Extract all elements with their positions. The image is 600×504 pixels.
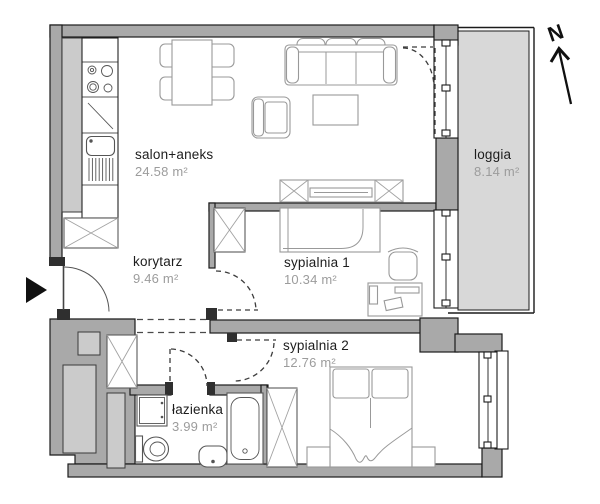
label-sypialnia1: sypialnia 1 10.34 m² [284, 254, 350, 288]
room-name: korytarz [133, 253, 183, 270]
balcony-door-swing [403, 47, 435, 136]
room-name: loggia [474, 146, 519, 163]
north-arrow-icon [551, 49, 571, 105]
nightstand [307, 447, 330, 467]
room-name: sypialnia 1 [284, 254, 350, 271]
floor-plan: salon+aneks 24.58 m² korytarz 9.46 m² sy… [0, 0, 600, 504]
corridor-wardrobe [107, 335, 137, 388]
kitchen-wardrobe [64, 218, 118, 248]
label-lazienka: łazienka 3.99 m² [172, 401, 223, 435]
room-area: 3.99 m² [172, 418, 223, 435]
armchair [252, 97, 290, 138]
room-name: łazienka [172, 401, 223, 418]
bathtub [227, 393, 263, 464]
planned-partition-dashed [137, 320, 210, 333]
room-area: 9.46 m² [133, 270, 183, 287]
bedroom2-window [479, 351, 508, 449]
balcony-door-window [434, 40, 458, 138]
toilet [136, 436, 169, 462]
room-name: sypialnia 2 [283, 337, 349, 354]
bedroom1-door-swing [216, 271, 258, 311]
room-area: 24.58 m² [135, 163, 213, 180]
label-salon: salon+aneks 24.58 m² [135, 146, 213, 180]
sofa [285, 39, 397, 86]
pillow [333, 369, 369, 398]
label-loggia: loggia 8.14 m² [474, 146, 519, 180]
room-name: salon+aneks [135, 146, 213, 163]
wardrobe [214, 208, 245, 252]
bedroom1-window [434, 210, 458, 308]
office-chair [388, 248, 418, 280]
label-sypialnia2: sypialnia 2 12.76 m² [283, 337, 349, 371]
tv-cabinet [280, 180, 403, 202]
dining-table [172, 40, 212, 105]
double-bed [330, 367, 412, 467]
pillow [372, 369, 408, 398]
bedroom2-furniture [267, 367, 435, 467]
room-area: 8.14 m² [474, 163, 519, 180]
coffee-table [313, 95, 358, 125]
nightstand [412, 447, 435, 467]
washing-machine [137, 395, 167, 426]
bathroom-door-swing [170, 349, 207, 386]
monitor [395, 287, 419, 293]
label-korytarz: korytarz 9.46 m² [133, 253, 183, 287]
room-area: 10.34 m² [284, 271, 350, 288]
washbasin [199, 446, 227, 467]
bedroom2-door-swing [234, 340, 276, 381]
floor-plan-drawing [0, 0, 600, 504]
room-area: 12.76 m² [283, 354, 349, 371]
desk [368, 283, 422, 316]
dining-table-set [160, 40, 234, 105]
kitchen-counter [82, 38, 118, 218]
entrance-door [64, 266, 110, 312]
wardrobe [267, 388, 297, 467]
entrance-arrow-icon [26, 277, 47, 303]
single-bed [280, 208, 380, 252]
